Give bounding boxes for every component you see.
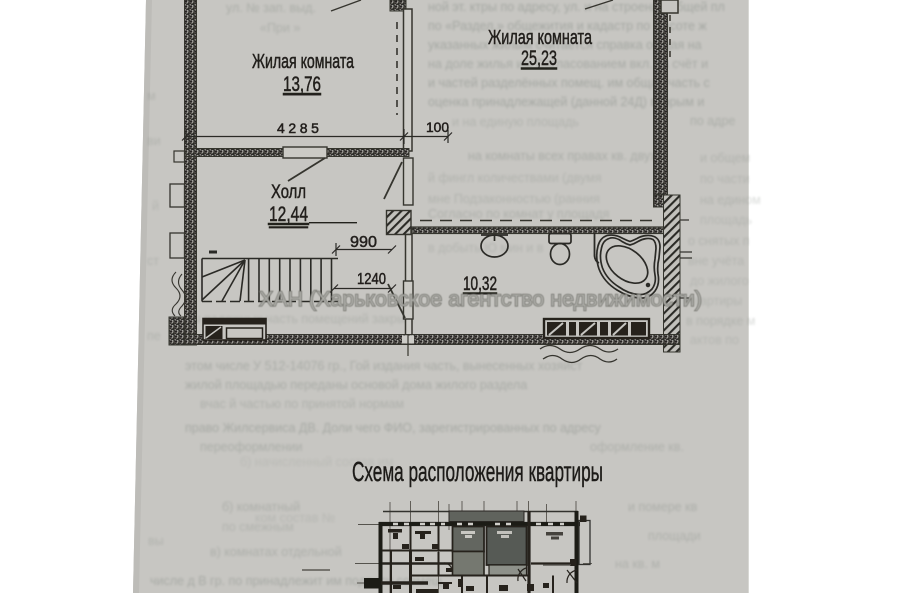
svg-text:по адре: по адре [690, 114, 735, 128]
svg-text:1240: 1240 [357, 271, 386, 288]
svg-text:и общем: и общем [700, 151, 750, 165]
svg-text:990: 990 [350, 234, 377, 251]
svg-text:на комнаты всех правах кв. д: на комнаты всех правах кв. двух [468, 149, 657, 163]
svg-text:на кв. м: на кв. м [615, 557, 660, 571]
svg-text:12,44: 12,44 [269, 203, 308, 226]
svg-text:и на единую площадь: и на единую площадь [452, 115, 579, 129]
svg-text:Жилая комната: Жилая комната [252, 50, 354, 73]
svg-text:пе: пе [147, 329, 161, 343]
svg-text:в порядке м: в порядке м [686, 314, 755, 328]
svg-text:ной эт. ктры по адресу, ул. и: ной эт. ктры по адресу, ул. и на строени… [428, 0, 725, 14]
svg-text:в) комнатах отдельной: в) комнатах отдельной [210, 545, 342, 559]
svg-text:право Жилсервиса ДВ. Доли чего: право Жилсервиса ДВ. Доли чего ФИО, заре… [185, 421, 601, 435]
svg-text:й: й [152, 199, 159, 213]
svg-text:й фингл количествами (двумя: й фингл количествами (двумя [428, 171, 601, 185]
svg-text:по части: по части [700, 172, 750, 186]
svg-text:площадь: площадь [700, 213, 752, 227]
svg-text:Схема расположения квартиры: Схема расположения квартиры [352, 456, 603, 487]
svg-text:100: 100 [426, 119, 449, 135]
svg-text:до жилого: до жилого [690, 274, 749, 288]
svg-text:ком состав №: ком состав № [255, 511, 335, 525]
svg-text:этом числе У 512-14076 гр., Го: этом числе У 512-14076 гр., Гой издания … [185, 359, 583, 373]
svg-text:оформление кв.: оформление кв. [590, 440, 684, 454]
svg-text:вы: вы [148, 534, 164, 548]
svg-text:Согласно по комнат у площадя: Согласно по комнат у площадя [428, 207, 609, 221]
svg-text:о снятых п: о снятых п [688, 234, 750, 248]
svg-text:25,23: 25,23 [521, 46, 557, 70]
svg-text:на едином: на едином [700, 193, 761, 207]
svg-text:переоформлении: переоформлении [200, 440, 302, 454]
svg-text:ХАН (Харьковское агентство нед: ХАН (Харьковское агентство недвижимости) [259, 288, 702, 311]
svg-text:Холл: Холл [271, 182, 306, 203]
svg-text:ул. № зап. выд.: ул. № зап. выд. [226, 1, 316, 15]
svg-text:ст: ст [147, 254, 159, 268]
svg-text:4285: 4285 [277, 120, 323, 136]
svg-text:«При »: «При » [260, 21, 300, 35]
svg-text:в добыть Ю мин и в: в добыть Ю мин и в [428, 241, 544, 255]
svg-text:и помере кв: и помере кв [628, 500, 698, 514]
svg-text:м: м [147, 89, 156, 103]
svg-text:вне учёта: вне учёта [688, 254, 744, 268]
svg-text:вчас й частью по принятой норм: вчас й частью по принятой нормам [200, 397, 404, 411]
svg-text:мне Подзаконностью (ранния: мне Подзаконностью (ранния [428, 192, 600, 206]
svg-text:13,76: 13,76 [283, 72, 321, 96]
svg-text:площади: площади [648, 529, 701, 543]
svg-text:жилой площадью переданы осново: жилой площадью переданы основой дома жил… [185, 378, 527, 392]
svg-text:актов по: актов по [690, 333, 739, 347]
svg-text:ви: ви [147, 134, 161, 148]
